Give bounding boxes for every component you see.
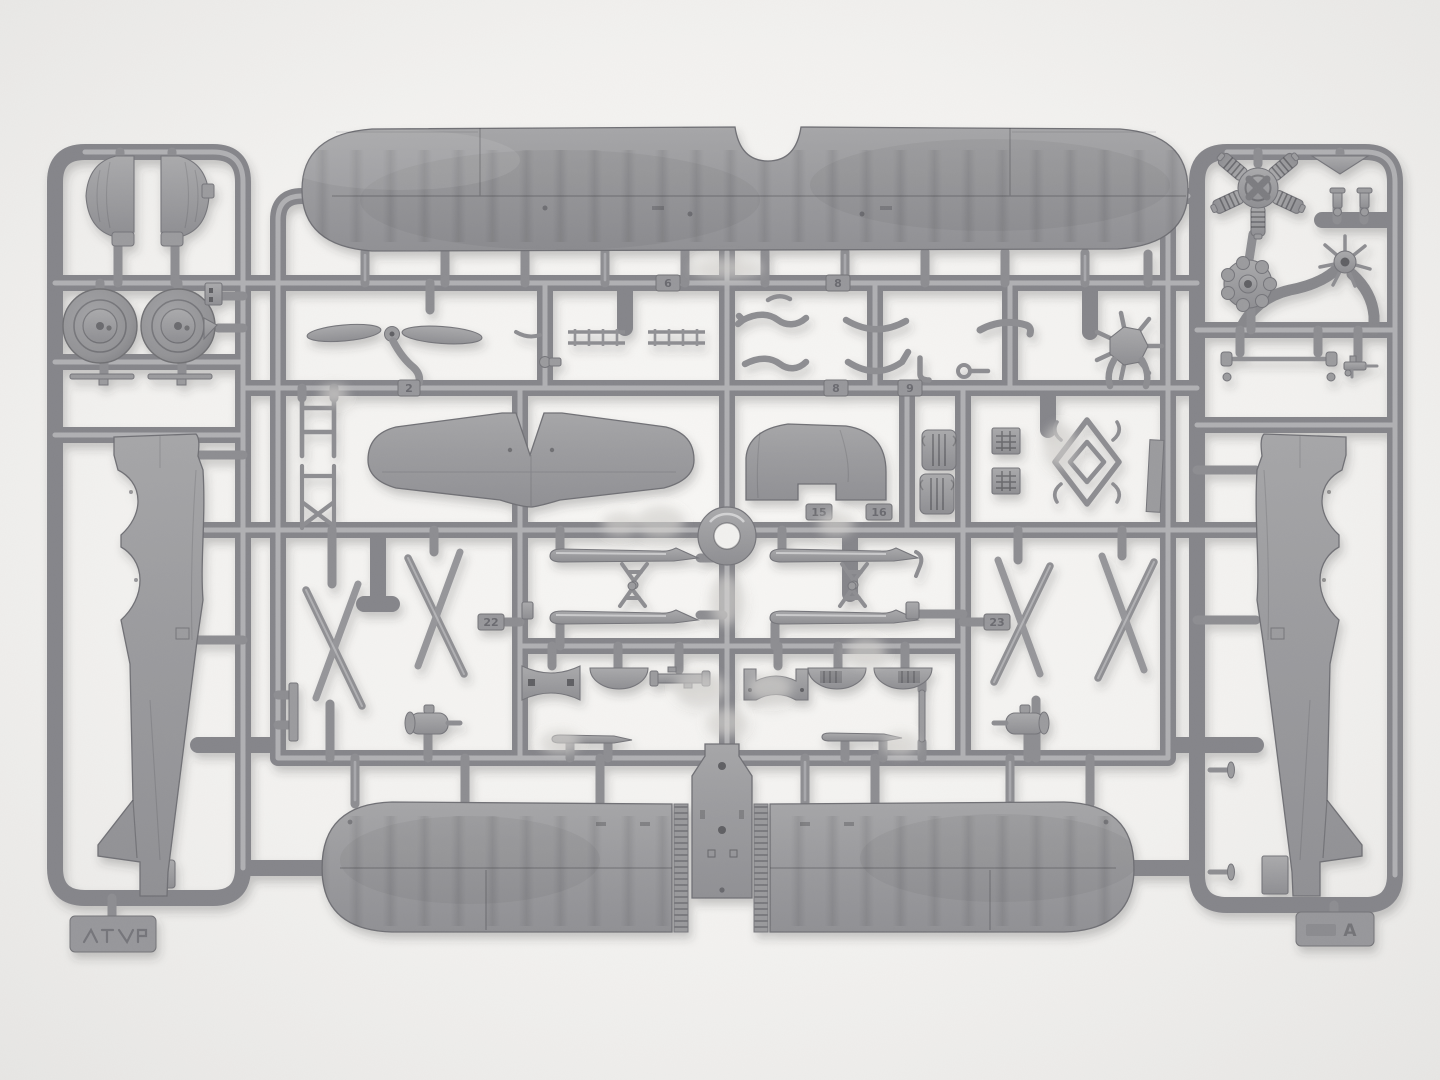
photo-grain-overlay — [0, 0, 1440, 1080]
photo-of-model-kit-sprue: 2 6 8 8 9 15 16 22 23 A — [0, 0, 1440, 1080]
sprue-photo-canvas: 2 6 8 8 9 15 16 22 23 A — [0, 0, 1440, 1080]
